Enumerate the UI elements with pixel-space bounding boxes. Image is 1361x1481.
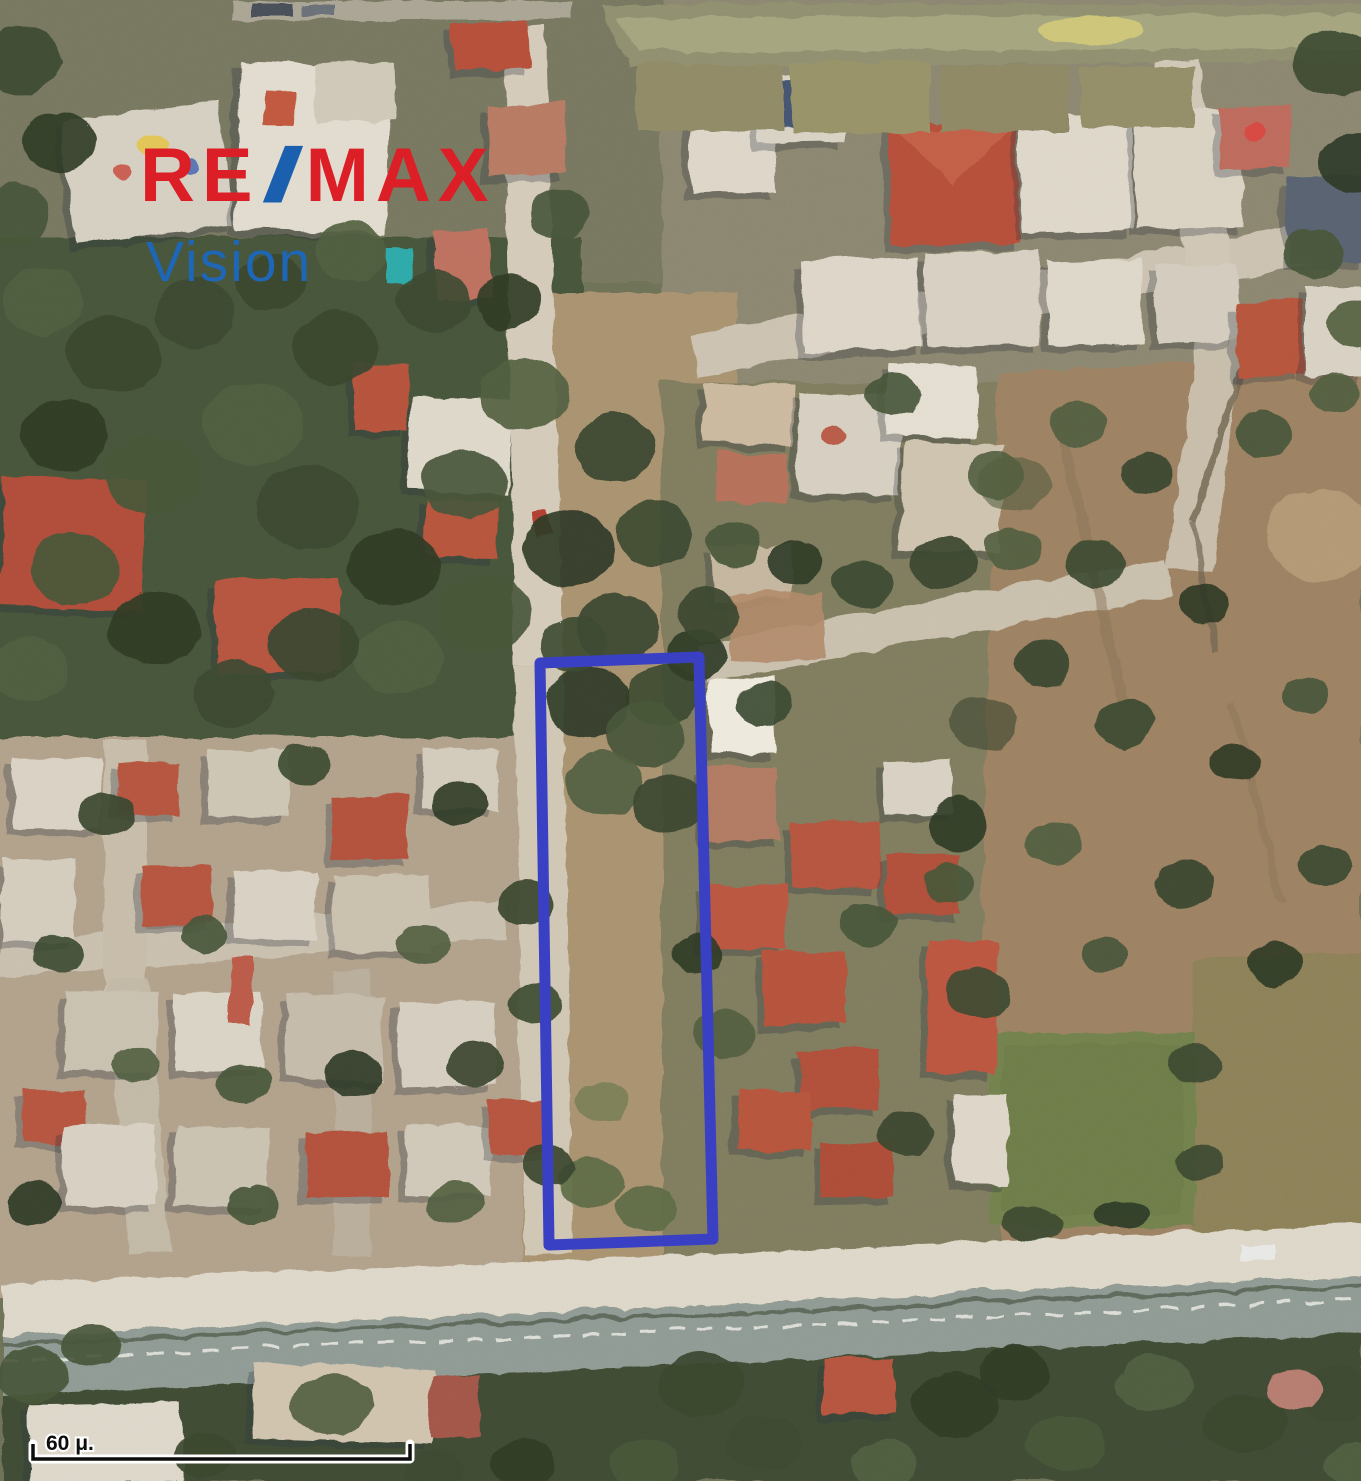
remax-logo: RE/MAX bbox=[140, 138, 495, 214]
remax-office-name: Vision bbox=[146, 234, 312, 291]
property-boundary-overlay bbox=[540, 657, 713, 1245]
map-annotations: 60 μ. bbox=[0, 0, 1361, 1481]
aerial-property-photo: 60 μ. RE/MAX Vision bbox=[0, 0, 1361, 1481]
scale-bar-label: 60 μ. bbox=[46, 1432, 94, 1455]
logo-max: MAX bbox=[306, 133, 496, 218]
logo-slash-icon: / bbox=[235, 138, 329, 214]
